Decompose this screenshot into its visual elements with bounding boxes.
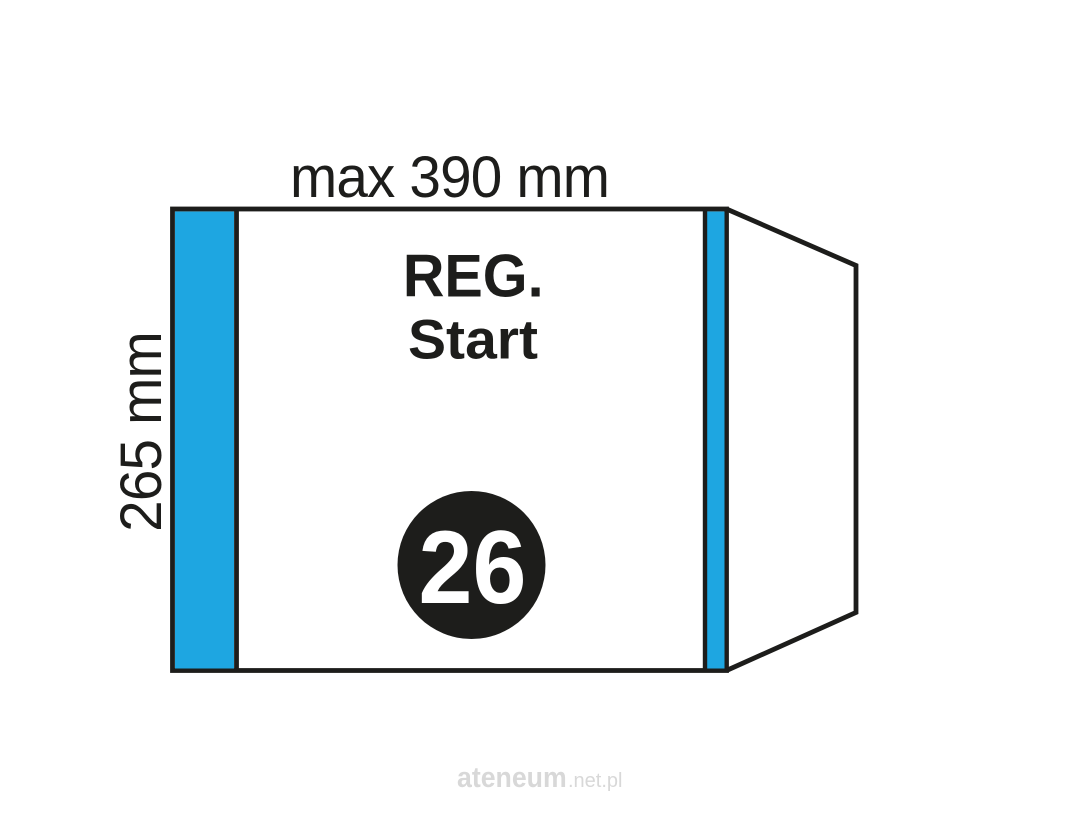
svg-text:Start: Start xyxy=(408,308,538,370)
svg-text:max 390 mm: max 390 mm xyxy=(290,145,609,210)
svg-text:ateneum: ateneum xyxy=(457,761,567,793)
svg-text:REG.: REG. xyxy=(403,244,544,310)
svg-text:265 mm: 265 mm xyxy=(109,332,174,532)
svg-text:.net.pl: .net.pl xyxy=(568,770,622,792)
svg-text:26: 26 xyxy=(419,510,527,626)
